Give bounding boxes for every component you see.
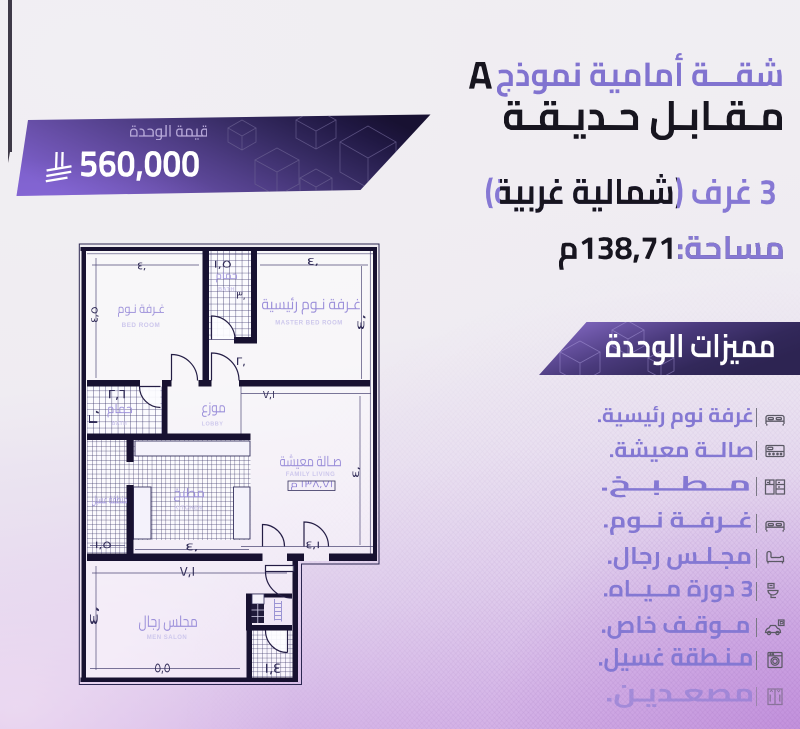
svg-text:FAMILY LIVING: FAMILY LIVING — [286, 472, 336, 478]
svg-text:MEN SALON: MEN SALON — [147, 635, 188, 641]
svg-text:LOBBY: LOBBY — [202, 422, 224, 428]
svg-text:BATH: BATH — [218, 287, 235, 293]
svg-text:MASTER BED ROOM: MASTER BED ROOM — [275, 321, 343, 327]
svg-text:BED ROOM: BED ROOM — [122, 322, 161, 329]
svg-text:BATH: BATH — [112, 421, 128, 427]
svg-text:KITCHEN: KITCHEN — [175, 506, 203, 512]
